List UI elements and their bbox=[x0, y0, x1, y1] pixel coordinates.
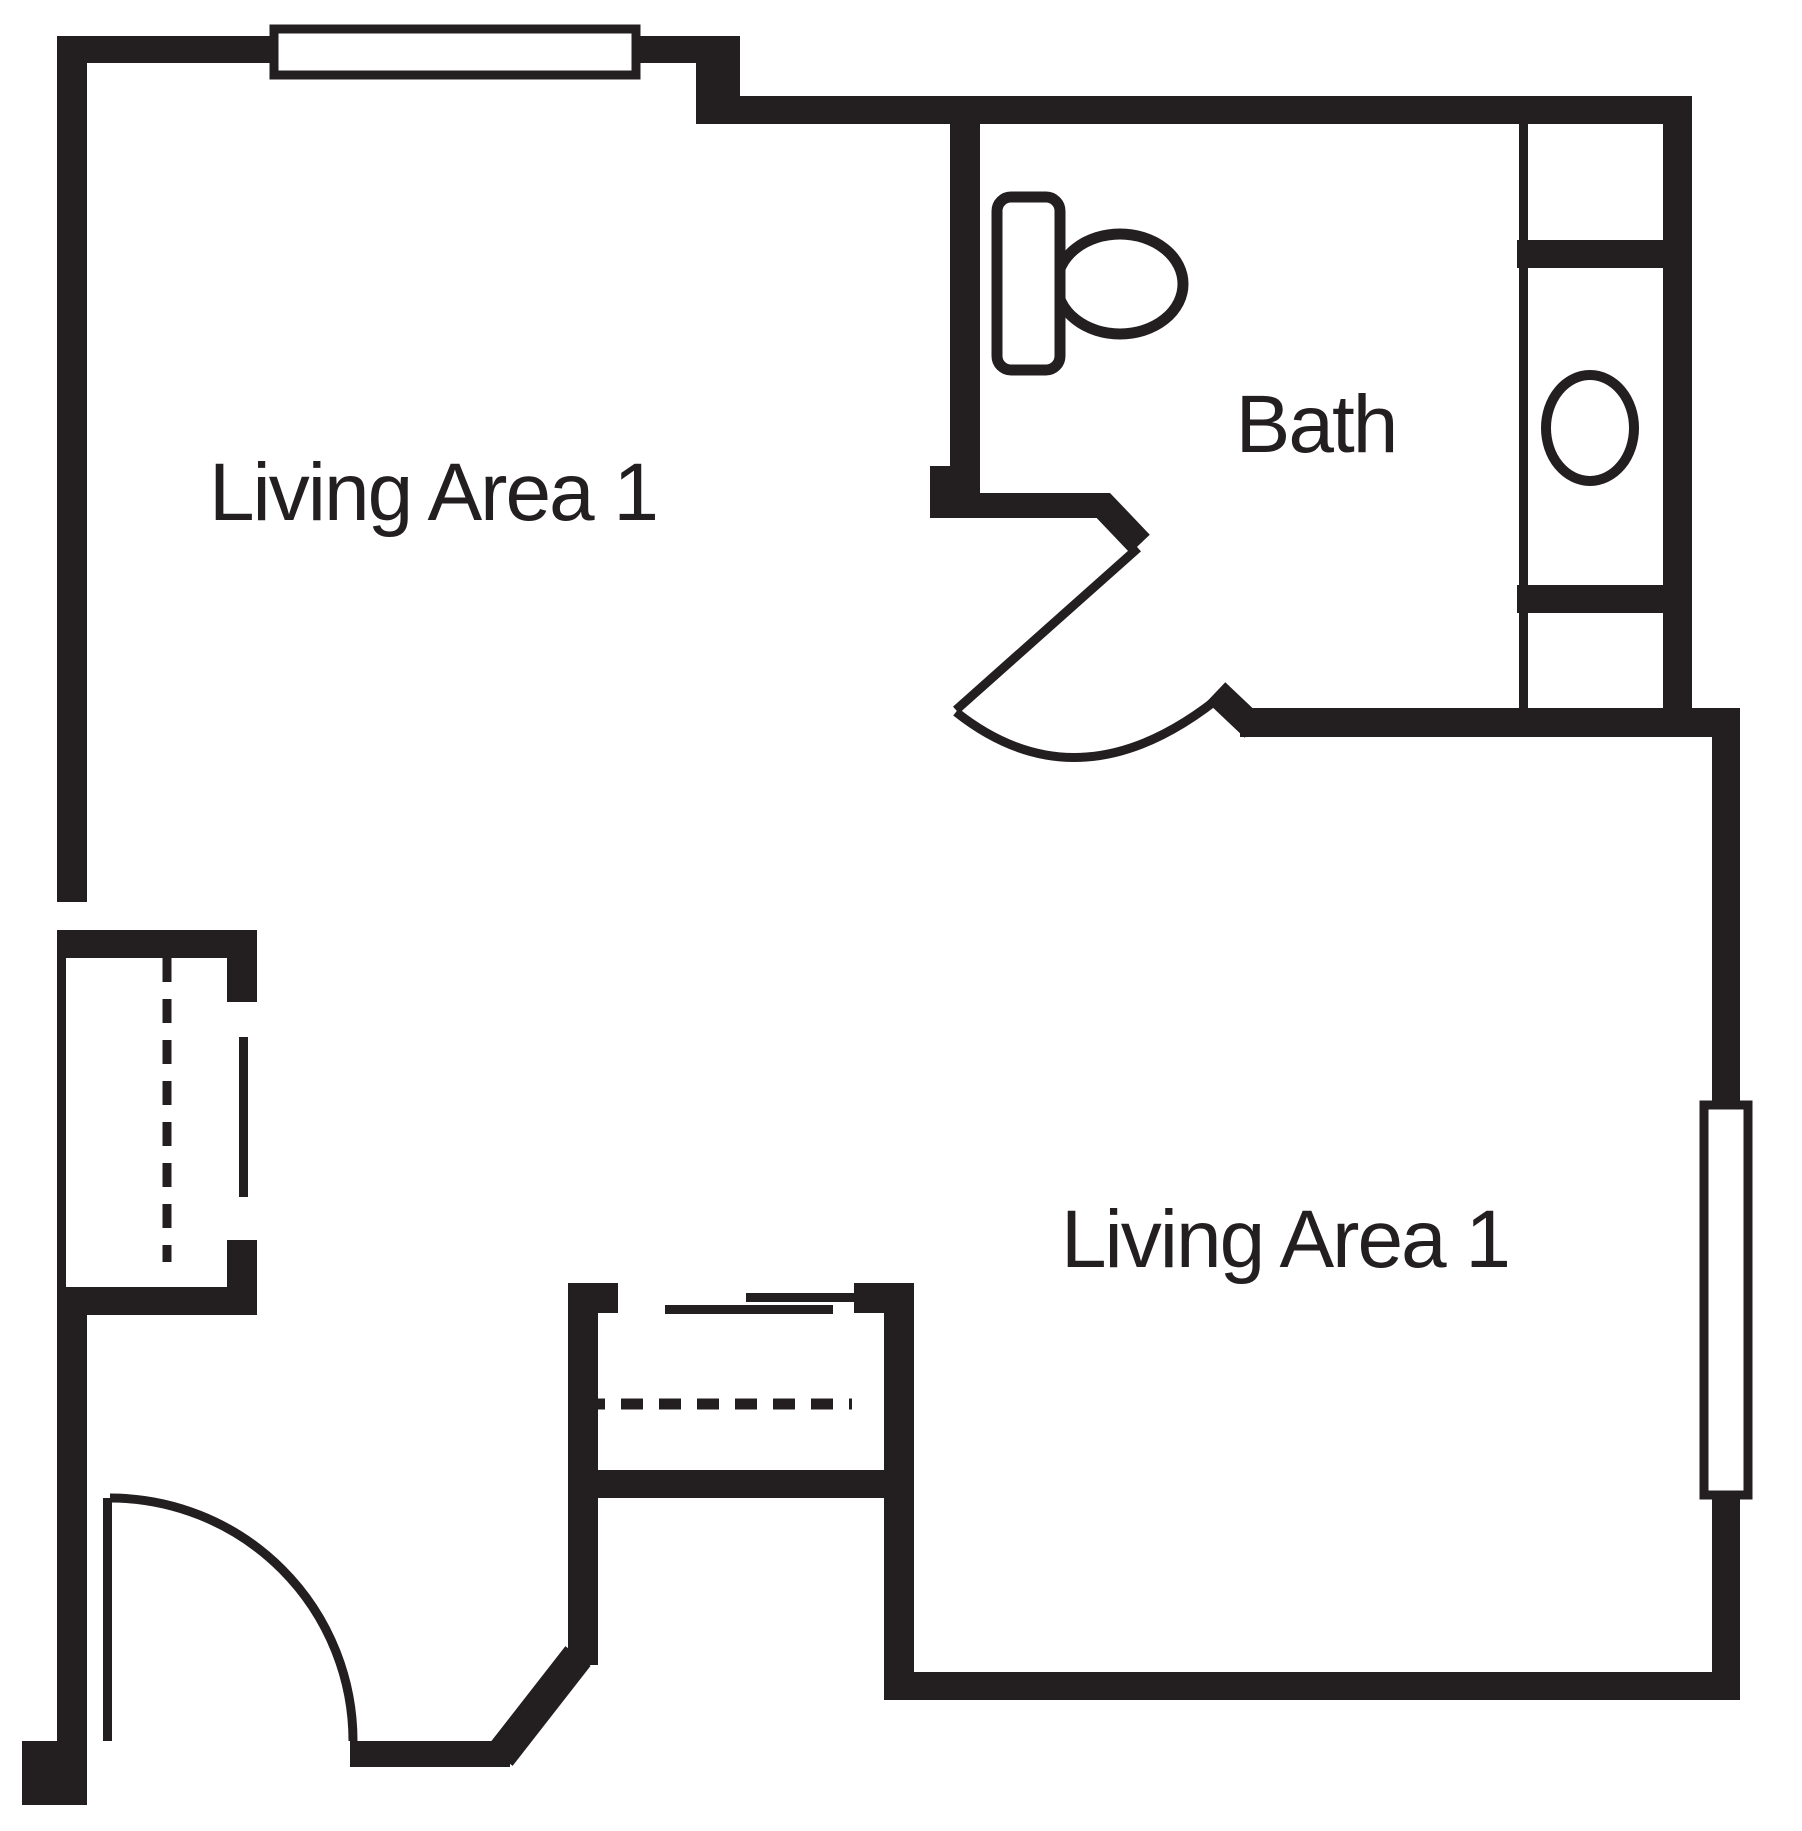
vanity bbox=[1517, 124, 1663, 708]
closet-center-bottom-wall bbox=[568, 1470, 914, 1498]
bath-door-arc bbox=[956, 692, 1226, 757]
entry-door-arc bbox=[110, 1498, 353, 1741]
wall-left-foot bbox=[22, 1741, 87, 1805]
closet-left bbox=[57, 930, 257, 1315]
wall-left-lower bbox=[57, 1315, 87, 1766]
closet-center-door-line-lower bbox=[665, 1305, 833, 1314]
toilet-tank bbox=[997, 197, 1060, 370]
vanity-upper-edge bbox=[1519, 124, 1528, 240]
toilet bbox=[997, 197, 1183, 370]
floor-plan: Living Area 1 Bath Living Area 1 bbox=[0, 0, 1802, 1831]
wall-bath-bottom bbox=[1240, 708, 1740, 737]
entry-door bbox=[103, 1498, 353, 1741]
vanity-lower-edge bbox=[1519, 613, 1528, 708]
wall-bath-left bbox=[950, 96, 980, 493]
walls bbox=[22, 36, 1740, 1805]
sink-basin bbox=[1546, 375, 1634, 481]
wall-diagonal bbox=[500, 1656, 578, 1756]
vanity-stub-upper bbox=[1517, 240, 1663, 268]
wall-bath-right bbox=[1663, 96, 1692, 737]
wall-bath-jamb bbox=[950, 493, 1110, 518]
closet-center-right-block bbox=[854, 1283, 914, 1313]
wall-bath-jamb-miter bbox=[1100, 502, 1140, 544]
closet-center-door-line-upper bbox=[746, 1293, 856, 1302]
closet-center-left-block bbox=[568, 1283, 618, 1313]
wall-bottom-right-room bbox=[884, 1672, 1740, 1700]
wall-bath-left-notch bbox=[930, 466, 952, 518]
room-label-bath: Bath bbox=[1236, 379, 1397, 470]
wall-bath-top bbox=[696, 96, 1692, 124]
bath-door bbox=[956, 548, 1226, 757]
room-label-living-area-bottom-right: Living Area 1 bbox=[1061, 1194, 1509, 1285]
closet-left-back-line bbox=[57, 930, 66, 1315]
entry-door-leaf bbox=[103, 1498, 112, 1741]
closet-left-top-block bbox=[227, 930, 257, 1002]
wall-top-left bbox=[57, 36, 277, 63]
closet-left-door-line bbox=[239, 1037, 248, 1197]
closet-left-bottom-stub bbox=[57, 1287, 257, 1315]
wall-entry-bottom bbox=[350, 1741, 510, 1767]
vanity-cabinet-edge bbox=[1519, 268, 1528, 585]
bath-door-leaf bbox=[956, 548, 1138, 710]
wall-left-upper bbox=[57, 36, 87, 902]
window-top bbox=[274, 29, 636, 75]
closet-center bbox=[568, 1283, 914, 1700]
toilet-bowl bbox=[1057, 234, 1183, 334]
vanity-stub-lower bbox=[1517, 585, 1663, 613]
window-right bbox=[1704, 1105, 1748, 1495]
room-label-living-area-top-left: Living Area 1 bbox=[209, 447, 657, 538]
